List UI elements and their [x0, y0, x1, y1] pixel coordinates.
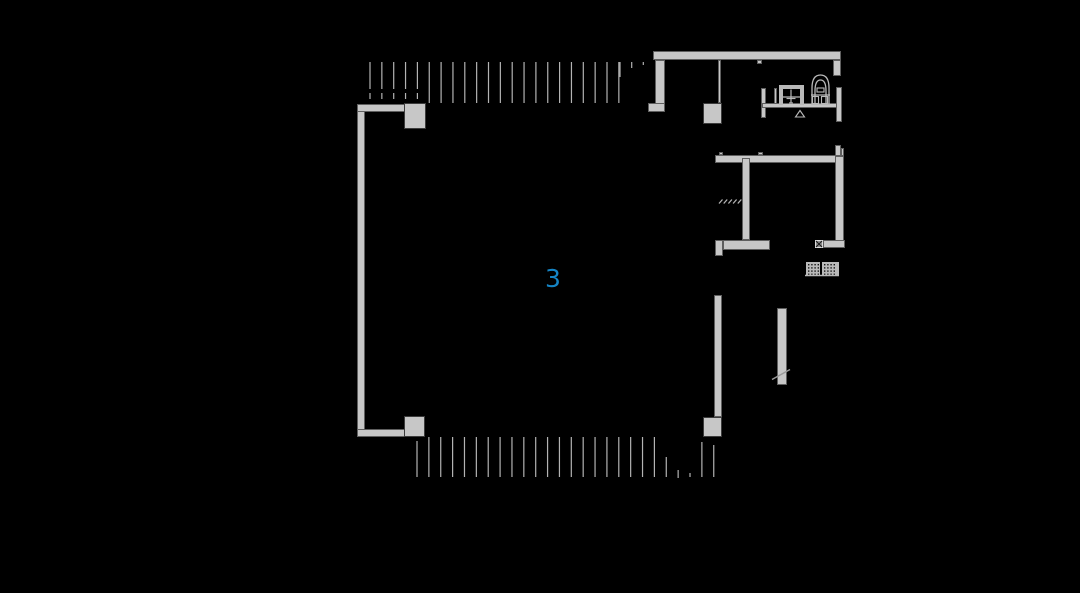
- heater-grill: [830, 267, 831, 268]
- room-top-wall-tick-b: [759, 153, 763, 155]
- plan-canvas: [0, 0, 1080, 593]
- heater-grill: [834, 267, 835, 268]
- heater-grill: [814, 267, 815, 268]
- room-top-wall-tick-a: [720, 153, 723, 155]
- room-number-label: 3: [545, 266, 561, 291]
- heater-grill: [834, 264, 835, 265]
- heater-grill: [811, 270, 812, 271]
- bath-partition: [775, 89, 777, 105]
- stair-rail-wall: [778, 309, 787, 385]
- heater-grill: [808, 264, 809, 265]
- top-wall-right-return: [834, 61, 841, 76]
- level-marker-triangle: [796, 111, 805, 118]
- heater-grill: [808, 270, 809, 271]
- heater-grill: [811, 267, 812, 268]
- room-right-wall: [836, 157, 844, 248]
- column-top-left: [405, 104, 426, 129]
- heater-grill: [824, 270, 825, 271]
- heater-grill: [824, 267, 825, 268]
- room-right-wall-top-stub: [836, 146, 841, 156]
- heater-grill: [814, 270, 815, 271]
- column-bottom-left: [405, 417, 425, 437]
- top-wall-left-pier-foot: [649, 104, 665, 112]
- column-bottom-right: [704, 418, 722, 437]
- floor-plan-viewport: 3: [0, 0, 1080, 593]
- lower-wall: [715, 296, 722, 417]
- heater-grill: [814, 264, 815, 265]
- threshold-hatch: [728, 200, 732, 204]
- heater-grill: [830, 270, 831, 271]
- heater-grill: [824, 264, 825, 265]
- heater-grill: [827, 264, 828, 265]
- sink-unit: [800, 85, 804, 105]
- left-wall: [358, 105, 365, 437]
- heater-grill: [808, 267, 809, 268]
- heater-grill: [830, 264, 831, 265]
- top-wall: [654, 52, 841, 60]
- heater-grill: [811, 264, 812, 265]
- top-partition-line: [719, 61, 721, 103]
- left-wall-bottom-return: [358, 430, 406, 437]
- column-top-middle: [704, 104, 722, 124]
- heater-grill: [818, 270, 819, 271]
- room-bottom-right-stub: [824, 241, 845, 248]
- threshold-hatch: [738, 200, 742, 204]
- heater-grill: [827, 270, 828, 271]
- left-wall-top-return: [358, 105, 406, 112]
- room-middle-wall: [743, 159, 750, 240]
- room-top-wall: [716, 156, 843, 163]
- room-bottom-wall: [724, 241, 770, 250]
- heater-grill: [827, 267, 828, 268]
- sink-unit: [779, 85, 783, 105]
- toilet-unit: [817, 88, 824, 92]
- heater-grill: [836, 262, 839, 276]
- top-wall-left-pier: [656, 61, 665, 104]
- bath-wall-right: [837, 88, 842, 122]
- threshold-hatch: [733, 200, 737, 204]
- threshold-hatch: [719, 200, 723, 204]
- threshold-hatch: [724, 200, 728, 204]
- heater-grill: [834, 270, 835, 271]
- room-right-wall-step: [842, 149, 844, 156]
- heater-grill: [818, 267, 819, 268]
- room-bottom-left-stub: [716, 241, 723, 256]
- heater-grill: [818, 264, 819, 265]
- top-wall-tick: [758, 61, 762, 64]
